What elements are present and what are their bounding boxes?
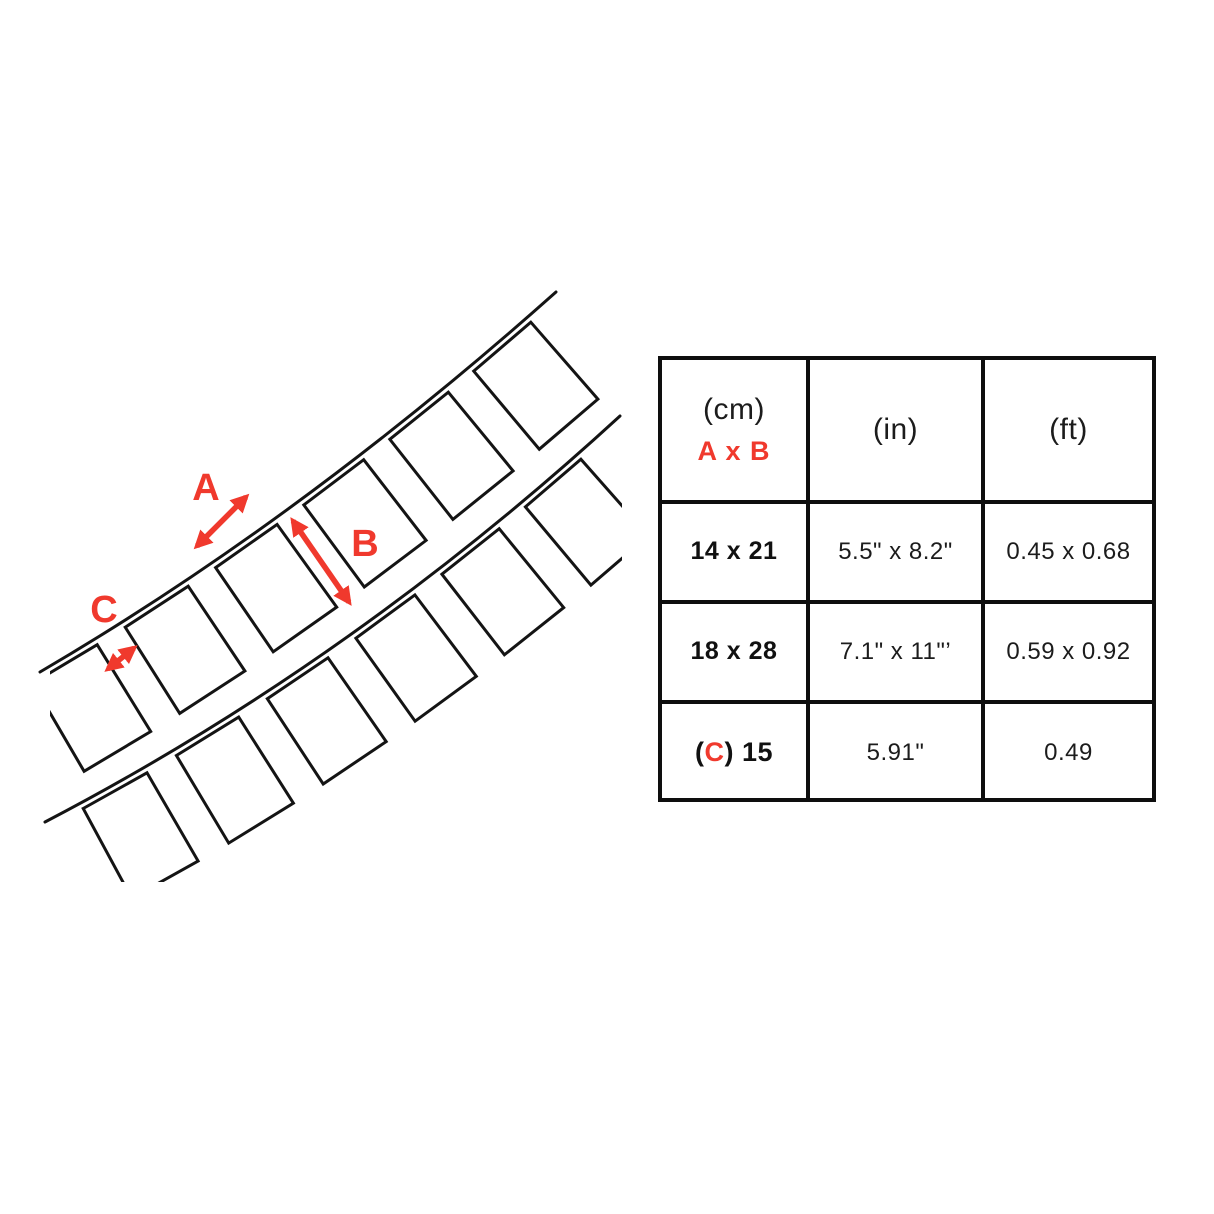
flag — [390, 392, 513, 519]
unit-in-label: (in) — [873, 411, 918, 449]
flags-group — [33, 322, 649, 898]
flag — [33, 645, 151, 772]
flag — [525, 459, 648, 585]
flag — [474, 322, 598, 449]
table-row1-in: 5.5" x 8.2" — [810, 504, 985, 604]
flag — [125, 586, 245, 713]
size-in-value: 7.1" x 11"’ — [840, 637, 951, 667]
table-row2-cm: 18 x 28 — [662, 604, 810, 704]
table-row2-in: 7.1" x 11"’ — [810, 604, 985, 704]
dimension-label-c: C — [90, 589, 117, 631]
flag — [216, 524, 337, 651]
table-row3-cm: (C) 15 — [662, 704, 810, 802]
table-row3-ft: 0.49 — [985, 704, 1152, 802]
header-cell-ft: (ft) — [985, 360, 1152, 504]
table-row3-in: 5.91" — [810, 704, 985, 802]
size-in-value: 5.91" — [867, 738, 925, 768]
unit-cm-label: (cm) — [703, 391, 765, 429]
dimension-label-b: B — [351, 523, 378, 565]
size-c-value: (C) 15 — [695, 736, 773, 770]
size-cm-value: 14 x 21 — [691, 536, 778, 567]
table-row1-cm: 14 x 21 — [662, 504, 810, 604]
size-table: (cm) A x B (in) (ft) 14 x 21 5.5" x 8.2"… — [658, 356, 1156, 802]
size-cm-value: 18 x 28 — [691, 636, 778, 667]
dimension-label-a: A — [192, 467, 219, 509]
dimension-arrow-c — [108, 648, 134, 669]
size-ft-value: 0.59 x 0.92 — [1006, 637, 1130, 667]
table-row2-ft: 0.59 x 0.92 — [985, 604, 1152, 704]
paren-close-value: ) 15 — [724, 737, 773, 767]
flag — [176, 717, 293, 843]
size-ft-value: 0.45 x 0.68 — [1006, 537, 1130, 567]
size-ft-value: 0.49 — [1044, 738, 1093, 768]
flag — [442, 529, 564, 655]
size-in-value: 5.5" x 8.2" — [838, 537, 953, 567]
header-cell-in: (in) — [810, 360, 985, 504]
axb-label: A x B — [697, 435, 770, 469]
header-cell-cm: (cm) A x B — [662, 360, 810, 504]
table-row1-ft: 0.45 x 0.68 — [985, 504, 1152, 604]
unit-ft-label: (ft) — [1049, 411, 1088, 449]
c-letter: C — [704, 737, 724, 767]
flag — [267, 658, 386, 784]
flag — [356, 595, 476, 721]
